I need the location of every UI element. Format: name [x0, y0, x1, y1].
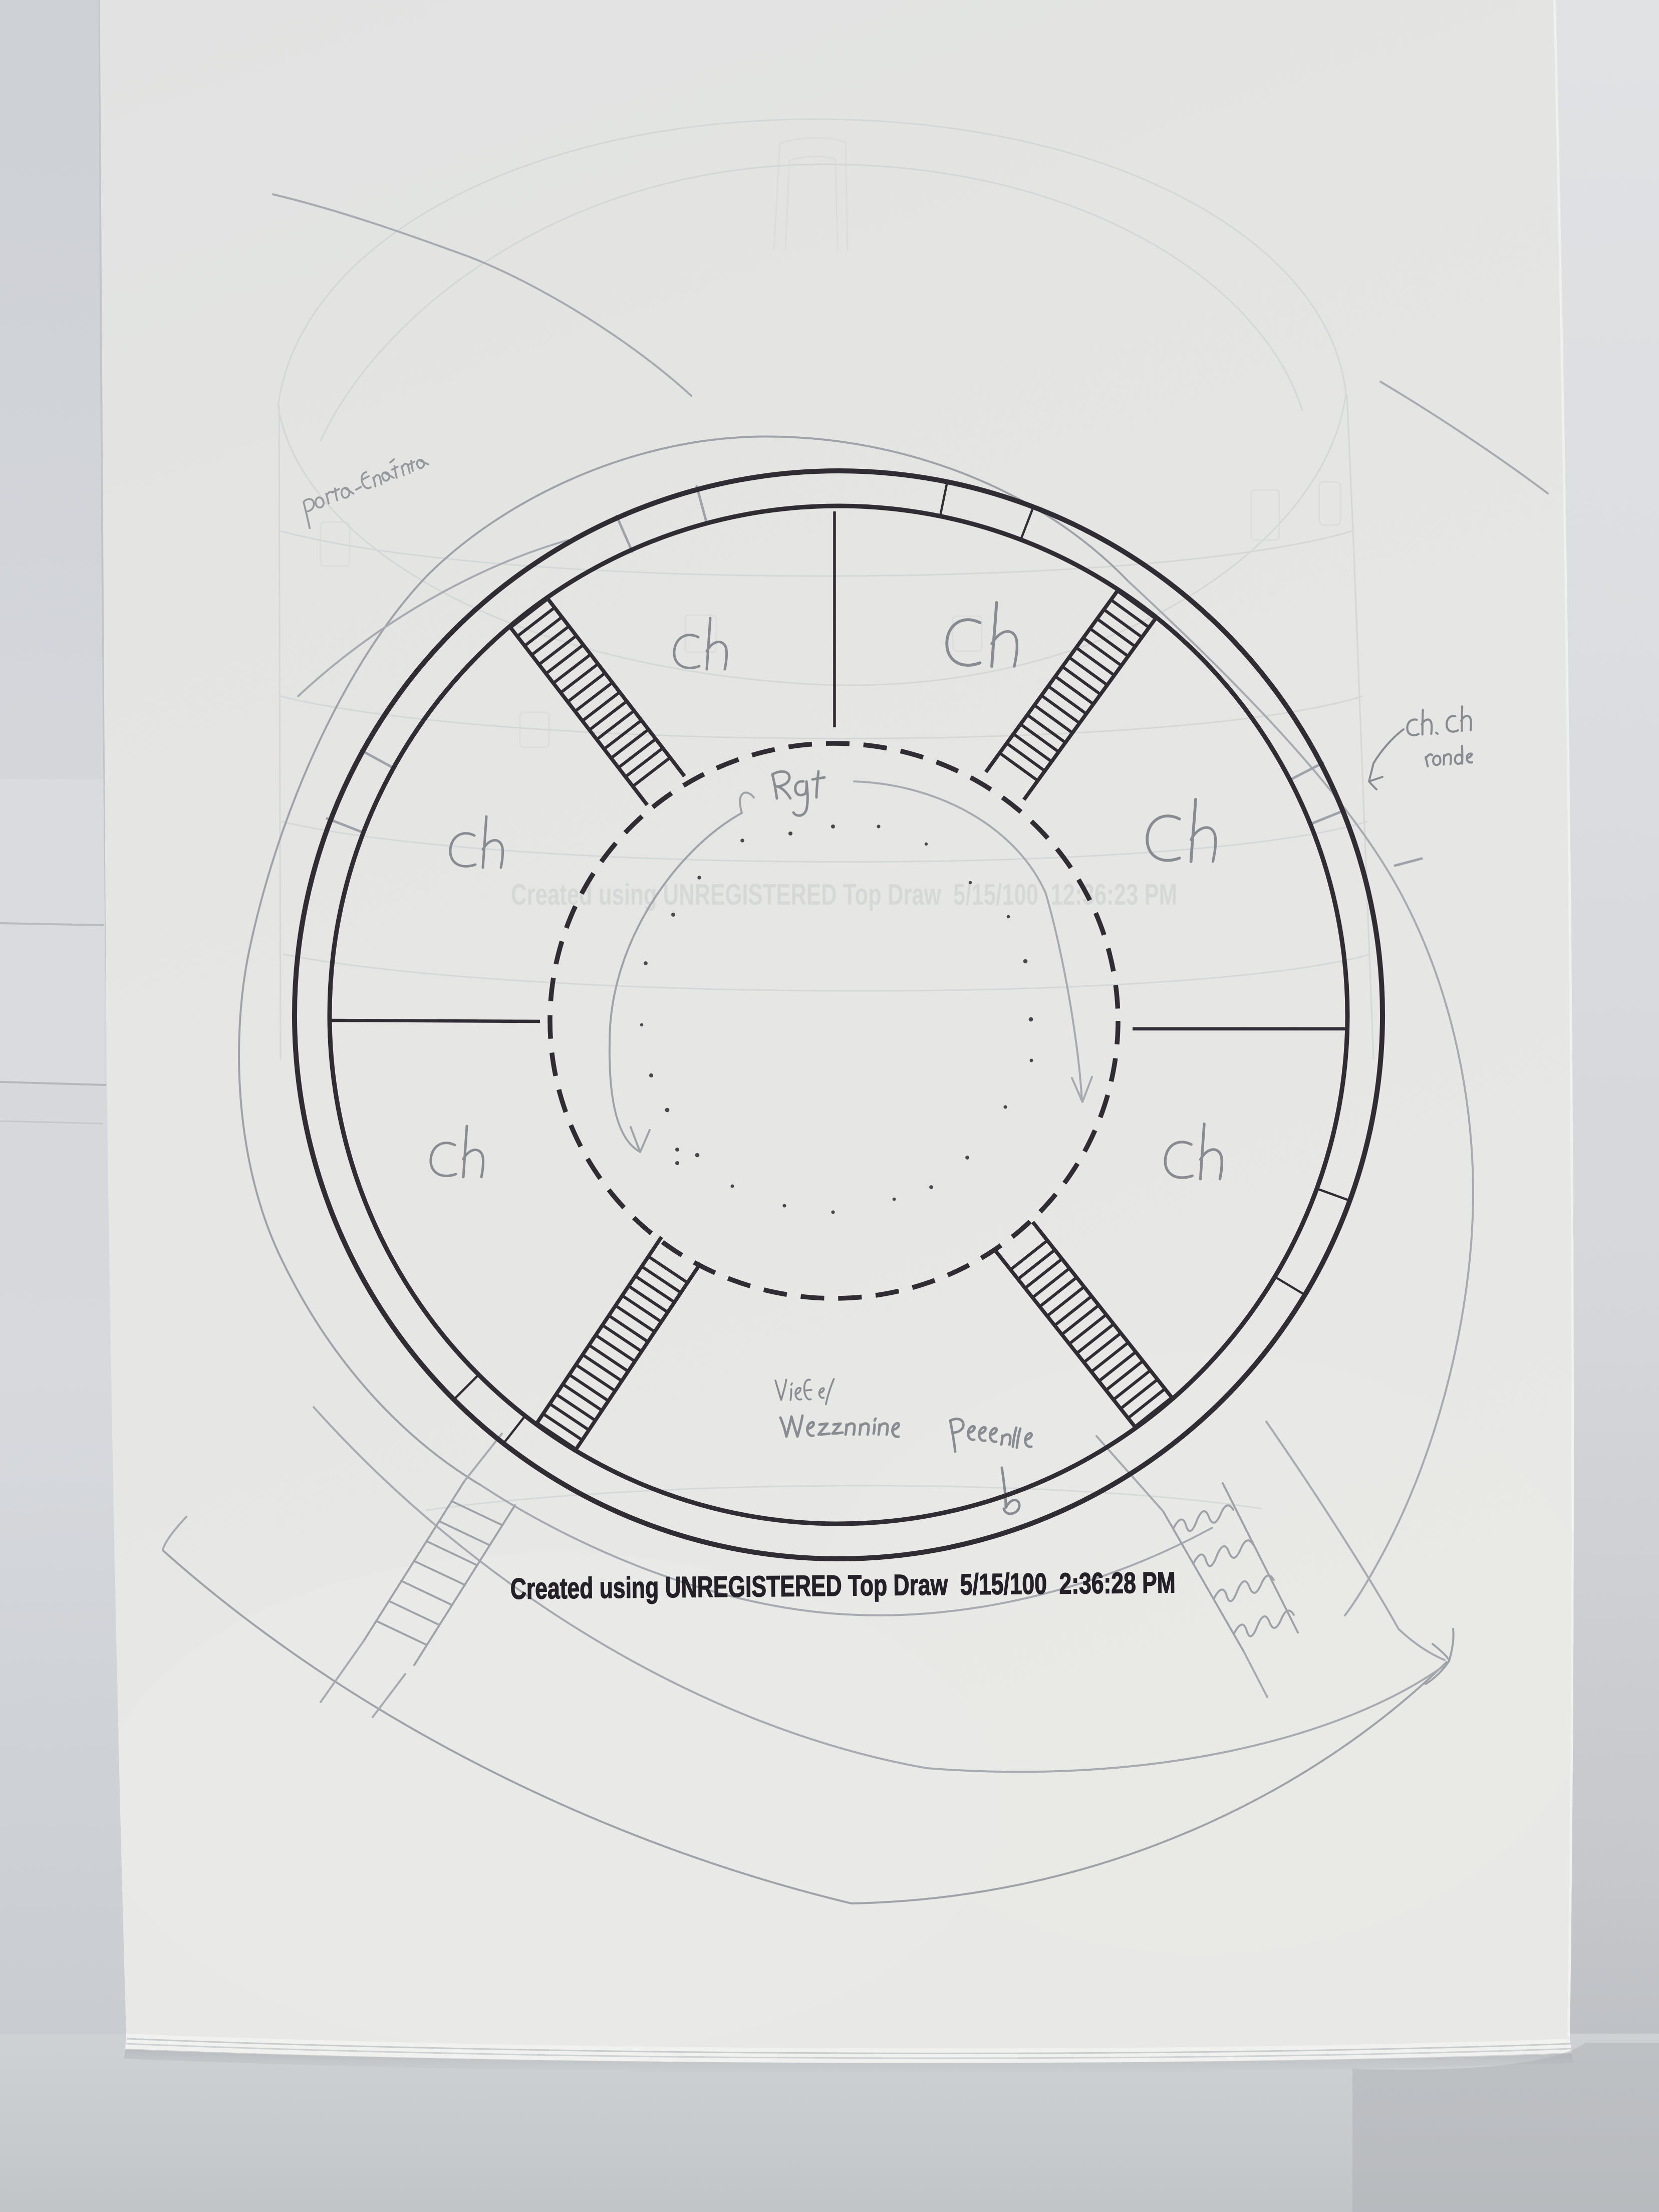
- svg-text:Created using UNREGISTERED Top: Created using UNREGISTERED Top Draw 5/15…: [510, 1566, 1176, 1605]
- svg-text:Created using UNREGISTERED Top: Created using UNREGISTERED Top Draw 5/15…: [511, 878, 1177, 911]
